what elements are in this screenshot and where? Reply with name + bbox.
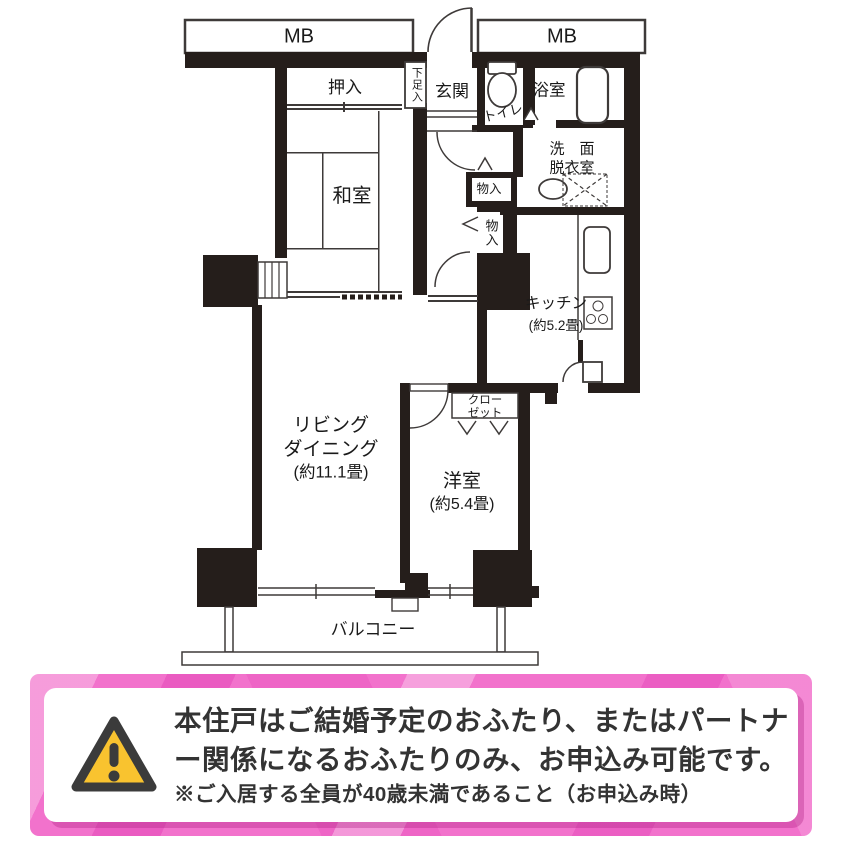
floor-plan: MB MB 押入 下足入 玄関 トイレ 浴室 洗 面 脱衣室 和室 物入 物入 …: [0, 0, 842, 676]
washer-space: [563, 174, 607, 206]
bathtub: [577, 67, 608, 123]
toilet-fixture: [488, 62, 516, 107]
storage-door-marker: [463, 217, 478, 231]
label-genkan: 玄関: [435, 82, 469, 102]
label-closet-line1: クロー: [468, 394, 503, 407]
label-closet-line2: ゼット: [468, 407, 503, 420]
western-room-door: [410, 384, 448, 428]
balcony-windows: [258, 584, 473, 599]
label-living-line2: ダイニング: [283, 439, 378, 461]
notice-line-2: ー関係になるおふたりのみ、お申込み可能です。: [174, 740, 789, 779]
label-living-size: (約11.1畳): [294, 464, 369, 483]
label-bath: 浴室: [533, 82, 566, 101]
label-storage-1: 物入: [476, 182, 501, 196]
notice-text: 本住戸はご結婚予定のおふたり、またはパートナ ー関係になるおふたりのみ、お申込み…: [174, 701, 789, 810]
label-washitsu: 和室: [332, 185, 371, 207]
entrance-door-arc: [428, 8, 472, 52]
notice-line-3: ※ご入居する全員が40歳未満であること（お申込み時）: [174, 780, 789, 810]
label-oshiire: 押入: [328, 78, 362, 98]
notice-banner: 本住戸はご結婚予定のおふたり、またはパートナ ー関係になるおふたりのみ、お申込み…: [30, 674, 812, 836]
label-kitchen: キッチン: [525, 295, 587, 313]
genkan-step-lines: [427, 111, 477, 131]
balcony-step: [392, 598, 418, 611]
label-living-line1: リビング: [293, 415, 369, 437]
kitchen-door: [563, 362, 602, 382]
label-washroom-line1: 洗 面: [549, 140, 594, 157]
label-washroom-line2: 脱衣室: [549, 159, 594, 176]
label-storage-2: 物入: [483, 219, 498, 247]
label-western: 洋室: [443, 471, 481, 493]
oshiire-slider: [287, 102, 402, 112]
label-shoe-box: 下足入: [410, 67, 423, 103]
hall-living-door: [428, 252, 478, 302]
washroom-door-arc: [437, 132, 475, 170]
warning-icon: [68, 713, 160, 797]
label-mb-right: MB: [547, 26, 577, 49]
label-western-size: (約5.4畳): [430, 496, 495, 514]
label-mb-left: MB: [284, 26, 314, 49]
striped-duct: [258, 262, 287, 298]
notice-line-1: 本住戸はご結婚予定のおふたり、またはパートナ: [174, 701, 789, 740]
label-balcony: バルコニー: [331, 620, 416, 640]
notice-card: 本住戸はご結婚予定のおふたり、またはパートナ ー関係になるおふたりのみ、お申込み…: [44, 688, 798, 822]
label-kitchen-size: (約5.2畳): [529, 318, 584, 334]
